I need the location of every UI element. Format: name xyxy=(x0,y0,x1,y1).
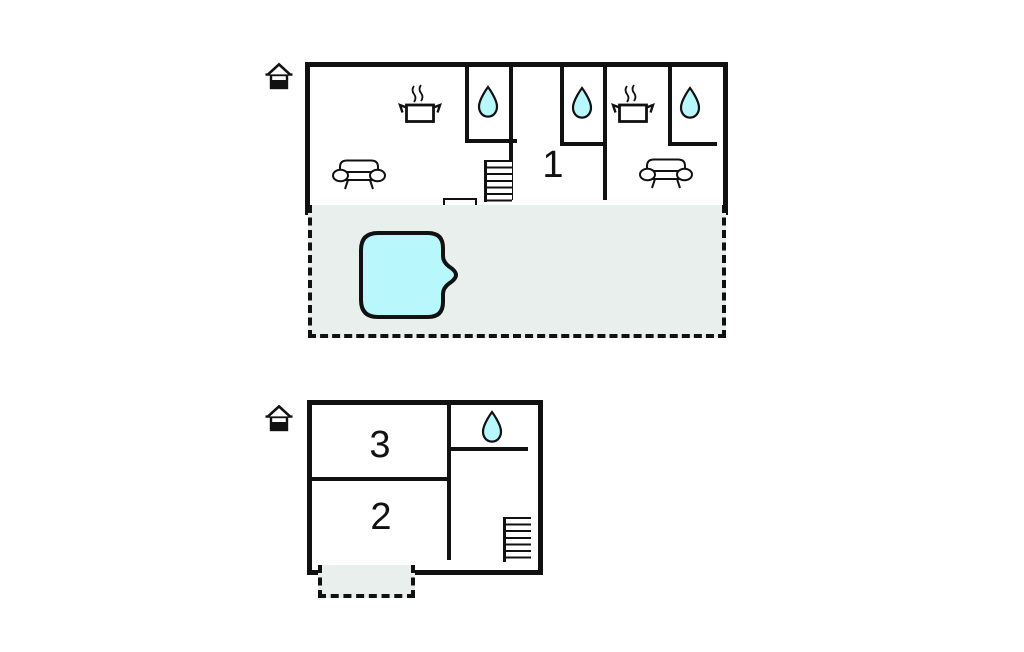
interior-wall xyxy=(312,477,447,481)
house-level-icon xyxy=(265,62,293,90)
water-drop-icon xyxy=(476,85,500,119)
terrace xyxy=(318,565,415,598)
sofa-icon xyxy=(639,155,693,189)
water-drop-icon xyxy=(570,86,594,120)
room-label: 1 xyxy=(542,146,563,184)
interior-wall xyxy=(603,67,607,200)
water-drop-icon xyxy=(678,86,702,120)
sofa-legs xyxy=(345,180,373,189)
sofa-arm xyxy=(677,169,692,181)
pool-area xyxy=(308,205,726,338)
sofa-legs xyxy=(652,179,680,188)
stove-pot-icon xyxy=(398,84,442,126)
water-drop-icon xyxy=(480,410,504,444)
steam-line xyxy=(626,86,629,102)
water-drop-shape xyxy=(681,88,699,118)
sofa-arm xyxy=(640,169,655,181)
house-body-fill xyxy=(271,80,287,88)
sofa-icon xyxy=(332,156,386,190)
steam-line xyxy=(420,85,423,101)
water-drop-shape xyxy=(573,88,591,118)
sofa-arm xyxy=(370,170,385,182)
sofa-arm xyxy=(333,170,348,182)
pool-shape xyxy=(361,233,456,317)
pot-body xyxy=(620,105,647,122)
house-level-icon xyxy=(265,404,293,432)
stairs xyxy=(503,517,531,562)
pot-body xyxy=(407,105,434,122)
stove-pot-icon xyxy=(611,84,655,126)
stairs xyxy=(484,160,512,202)
interior-wall xyxy=(451,447,528,451)
steam-line xyxy=(413,86,416,102)
water-drop-shape xyxy=(479,87,497,117)
lower-floor-plan: 3 2 xyxy=(307,400,543,575)
swimming-pool xyxy=(358,230,462,320)
water-drop-shape xyxy=(483,412,501,442)
house-body-fill xyxy=(271,422,287,430)
room-label: 3 xyxy=(369,426,390,464)
house-roof xyxy=(268,406,290,416)
house-roof xyxy=(268,64,290,74)
interior-wall xyxy=(447,405,451,560)
room-label: 2 xyxy=(370,498,391,536)
upper-floor-plan: 1 xyxy=(305,62,728,215)
steam-line xyxy=(633,85,636,101)
